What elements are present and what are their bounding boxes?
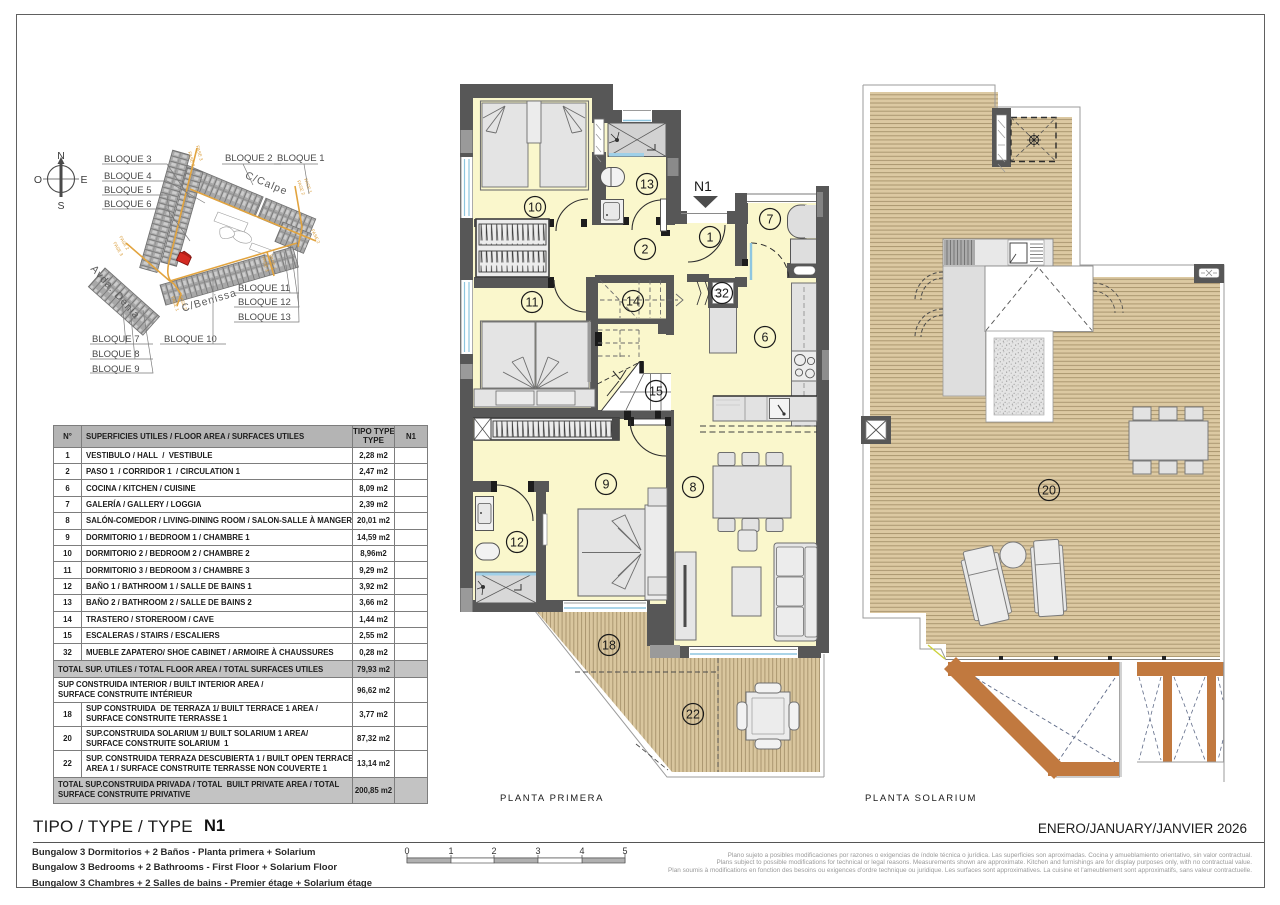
svg-text:PLANTA PRIMERA: PLANTA PRIMERA [500,793,604,804]
svg-text:8: 8 [690,481,697,495]
svg-text:20: 20 [1042,484,1056,498]
svg-text:3: 3 [535,846,540,856]
svg-text:2: 2 [491,846,496,856]
svg-text:BLOQUE 10: BLOQUE 10 [164,334,217,345]
svg-text:32: 32 [715,287,729,301]
svg-text:BLOQUE 2: BLOQUE 2 [225,153,273,164]
svg-text:2: 2 [642,243,649,257]
svg-text:PLANTA SOLARIUM: PLANTA SOLARIUM [865,793,977,804]
svg-text:7: 7 [767,213,774,227]
svg-text:14: 14 [626,295,640,309]
svg-text:4: 4 [579,846,584,856]
svg-text:BLOQUE 3: BLOQUE 3 [104,154,152,165]
svg-text:1: 1 [707,231,714,245]
svg-text:FASE 2: FASE 2 [310,228,321,244]
svg-text:18: 18 [602,639,616,653]
svg-text:9: 9 [603,478,610,492]
svg-text:1: 1 [448,846,453,856]
svg-text:E: E [80,174,87,186]
svg-text:N1: N1 [694,178,712,194]
svg-text:BLOQUE 7: BLOQUE 7 [92,334,140,345]
svg-text:BLOQUE 13: BLOQUE 13 [238,312,291,323]
svg-text:BLOQUE 12: BLOQUE 12 [238,297,291,308]
svg-text:6: 6 [762,331,769,345]
svg-text:12: 12 [510,536,524,550]
svg-text:N: N [57,150,65,162]
svg-text:15: 15 [649,385,663,399]
svg-text:22: 22 [686,708,700,722]
svg-text:BLOQUE 8: BLOQUE 8 [92,349,140,360]
svg-text:BLOQUE 5: BLOQUE 5 [104,185,152,196]
svg-text:S: S [57,200,64,212]
svg-text:BLOQUE 1: BLOQUE 1 [277,153,325,164]
svg-text:BLOQUE 4: BLOQUE 4 [104,171,152,182]
svg-text:11: 11 [526,296,539,310]
svg-text:BLOQUE 6: BLOQUE 6 [104,199,152,210]
svg-text:BLOQUE 11: BLOQUE 11 [238,283,290,294]
svg-text:O: O [34,174,42,186]
svg-text:10: 10 [528,201,542,215]
svg-text:13: 13 [640,178,654,192]
